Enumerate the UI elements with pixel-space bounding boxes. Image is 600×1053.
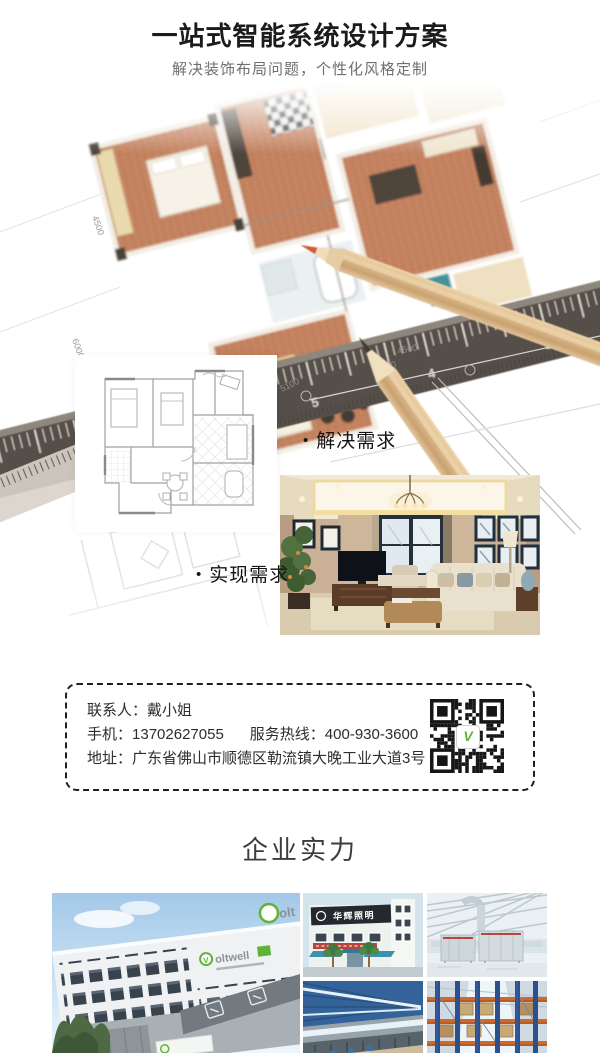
contact-address-line: 地址：广东省佛山市顺德区勒流镇大晚工业大道3号 bbox=[87, 747, 425, 771]
contact-person-line: 联系人：戴小姐 bbox=[87, 699, 425, 723]
rooftop-sign: 华辉照明 bbox=[311, 905, 392, 926]
bullet-icon: • bbox=[196, 566, 202, 583]
cloud bbox=[120, 901, 160, 915]
realize-step-text: 实现需求 bbox=[209, 565, 289, 586]
solve-step-text: 解决需求 bbox=[316, 431, 396, 452]
photo-workshop-interior bbox=[303, 981, 423, 1053]
qr-center-logo: V bbox=[456, 725, 480, 749]
contact-phone-line: 手机：13702627055服务热线：400-930-3600 bbox=[87, 723, 425, 747]
realize-step-label: •实现需求 bbox=[196, 560, 289, 587]
phone-label: 手机： bbox=[87, 726, 132, 743]
contact-person-value: 戴小姐 bbox=[147, 702, 192, 719]
contact-card: 联系人：戴小姐 手机：13702627055服务热线：400-930-3600 … bbox=[65, 683, 535, 791]
hotline-label: 服务热线： bbox=[250, 726, 325, 743]
ground bbox=[303, 967, 423, 977]
address-value: 广东省佛山市顺德区勒流镇大晚工业大道3号 bbox=[132, 750, 425, 767]
landing-page: 一站式智能系统设计方案 解决装饰布局问题，个性化风格定制 bbox=[0, 0, 600, 1053]
photo-factory-machinery bbox=[427, 893, 547, 977]
phone-value: 13702627055 bbox=[132, 726, 224, 743]
hotline-value: 400-930-3600 bbox=[325, 726, 418, 743]
qr-code: V bbox=[430, 697, 504, 775]
address-label: 地址： bbox=[87, 750, 132, 767]
section-title-strength: 企业实力 bbox=[0, 830, 600, 867]
living-room-photo bbox=[280, 475, 540, 635]
contact-person-label: 联系人： bbox=[87, 702, 147, 719]
cloud bbox=[74, 910, 134, 928]
photo-company-building: V oltwell olt bbox=[52, 893, 300, 1053]
top-fade bbox=[0, 82, 600, 154]
svg-text:olt: olt bbox=[278, 904, 296, 921]
coffee-table bbox=[392, 588, 440, 598]
floorplan-sketch-card bbox=[75, 355, 277, 532]
solve-step-label: •解决需求 bbox=[303, 426, 396, 453]
svg-text:华辉照明: 华辉照明 bbox=[333, 909, 375, 921]
page-title: 一站式智能系统设计方案 bbox=[0, 16, 600, 53]
contact-info: 联系人：戴小姐 手机：13702627055服务热线：400-930-3600 … bbox=[87, 699, 425, 771]
photo-blue-building: 华辉照明 bbox=[303, 893, 423, 977]
page-subtitle: 解决装饰布局问题，个性化风格定制 bbox=[0, 58, 600, 79]
photo-warehouse-racks bbox=[427, 981, 547, 1053]
bullet-icon: • bbox=[303, 432, 309, 449]
